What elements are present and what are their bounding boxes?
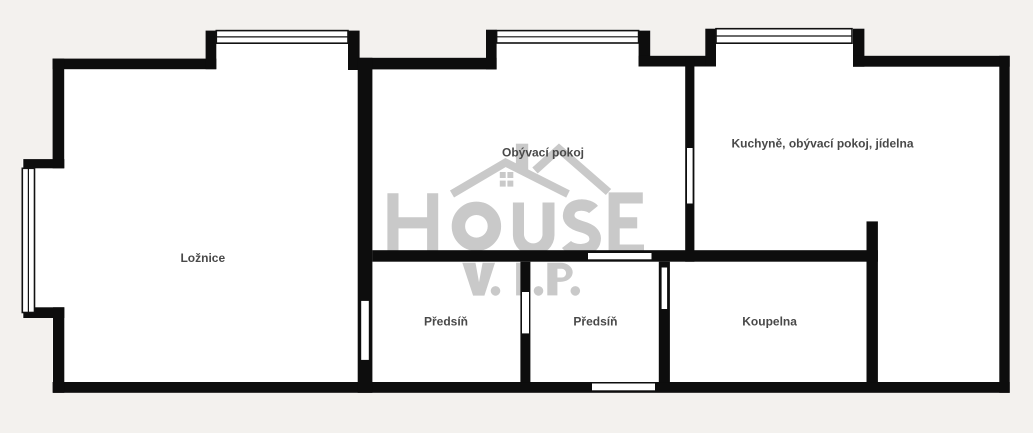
svg-text:Obývací pokoj: Obývací pokoj [502,145,584,159]
svg-text:Koupelna: Koupelna [742,314,797,328]
svg-text:Kuchyně, obývací pokoj, jídeln: Kuchyně, obývací pokoj, jídelna [731,136,913,150]
svg-text:Ložnice: Ložnice [180,251,225,265]
svg-text:Předsíň: Předsíň [573,314,617,328]
svg-text:Předsíň: Předsíň [424,314,468,328]
